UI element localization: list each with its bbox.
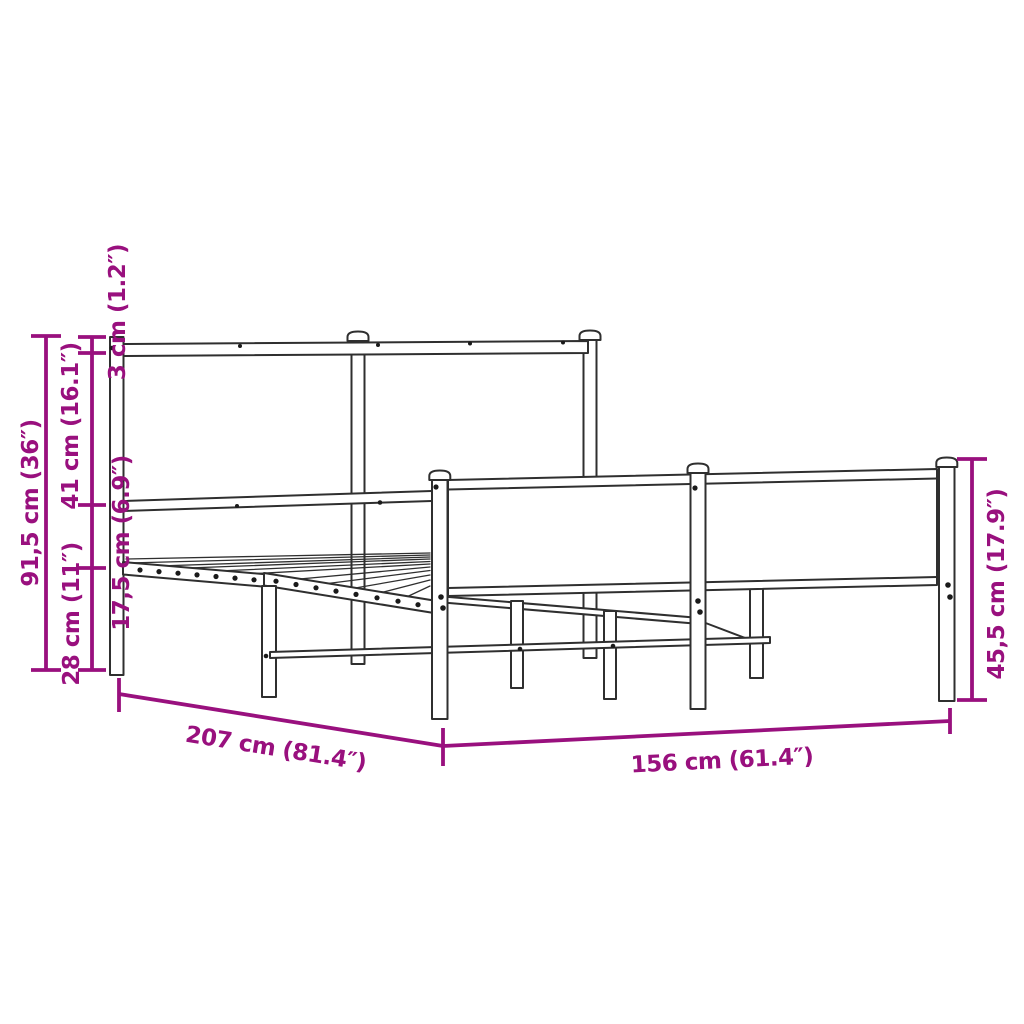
center-support-bar xyxy=(437,596,700,624)
headboard-top-rail xyxy=(123,341,588,356)
headboard-upper-label: 41 cm (16.1″) xyxy=(58,342,84,509)
support-leg-3 xyxy=(604,611,616,699)
side-rail xyxy=(123,562,437,614)
top-rail-label: 3 cm (1.2″) xyxy=(105,244,131,380)
footboard-height-dimension-line xyxy=(957,459,987,700)
footboard-center-post xyxy=(691,473,706,709)
bed-frame-drawing xyxy=(110,331,958,720)
width-dimension-line xyxy=(443,708,950,746)
width-label: 156 cm (61.4″) xyxy=(630,744,814,779)
footboard-far-post-cap xyxy=(936,458,957,468)
footboard-near-post-cap xyxy=(429,471,450,481)
side-rail-height-label: 17,5 cm (6.9″) xyxy=(109,455,135,630)
footboard xyxy=(429,458,957,720)
ground-clearance-label: 28 cm (11″) xyxy=(59,542,85,685)
footboard-height-label: 45,5 cm (17.9″) xyxy=(984,489,1010,680)
headboard-far-post-cap xyxy=(580,331,601,341)
footboard-center-post-cap xyxy=(688,464,709,474)
overall-height-label: 91,5 cm (36″) xyxy=(18,419,44,586)
bed-frame-diagram: 91,5 cm (36″) 41 cm (16.1″) 28 cm (11″) … xyxy=(0,0,1024,1024)
headboard-center-post-cap xyxy=(348,332,369,342)
diagram-stage: 91,5 cm (36″) 41 cm (16.1″) 28 cm (11″) … xyxy=(0,0,1024,1024)
support-leg-1 xyxy=(262,586,276,697)
support-leg-4 xyxy=(750,588,763,678)
